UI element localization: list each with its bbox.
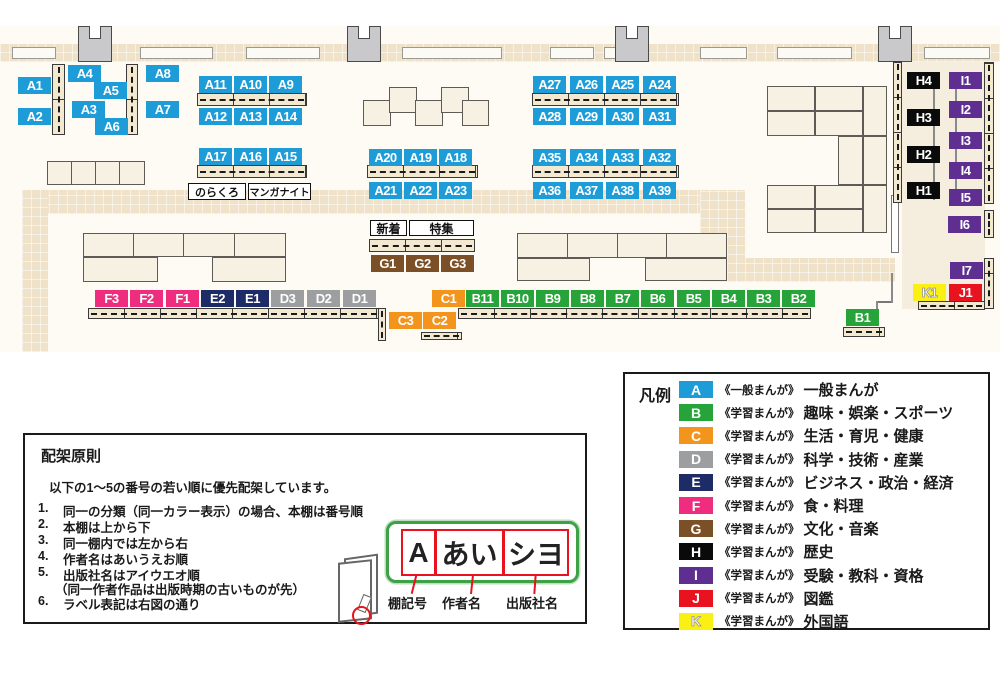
wall-window bbox=[402, 47, 502, 59]
table-block bbox=[517, 233, 568, 258]
legend-series-label: 《学習まんが》 bbox=[719, 613, 800, 629]
shelf-label-a23: A23 bbox=[439, 182, 472, 199]
walkway-left-vertical bbox=[22, 190, 48, 352]
table-block bbox=[838, 136, 863, 185]
legend-chip-h: H bbox=[679, 543, 713, 560]
table-block bbox=[133, 233, 184, 257]
shelf-label-i6: I6 bbox=[948, 216, 981, 233]
table-block bbox=[462, 100, 489, 126]
shelf-label-a14: A14 bbox=[269, 108, 302, 125]
shelf-label-b9: B9 bbox=[536, 290, 569, 307]
table-block bbox=[83, 233, 134, 257]
wall-window bbox=[550, 47, 594, 59]
shelf-label-b7: B7 bbox=[606, 290, 639, 307]
shelf-run bbox=[984, 210, 994, 238]
shelf-label-a37: A37 bbox=[570, 182, 603, 199]
shelf-label-a24: A24 bbox=[643, 76, 676, 93]
legend-series-label: 《学習まんが》 bbox=[719, 521, 800, 537]
shelf-label-a12: A12 bbox=[199, 108, 232, 125]
legend-category-label: ビジネス・政治・経済 bbox=[804, 472, 954, 493]
shelf-label-a16: A16 bbox=[234, 148, 267, 165]
table-block bbox=[863, 185, 887, 233]
legend-row-d: D《学習まんが》科学・技術・産業 bbox=[625, 448, 988, 471]
shelf-label-a2: A2 bbox=[18, 108, 51, 125]
shelf-label-a8: A8 bbox=[146, 65, 179, 82]
legend-row-a: A《一般まんが》一般まんが bbox=[625, 378, 988, 401]
legend-series-label: 《学習まんが》 bbox=[719, 567, 800, 583]
shelf-dash bbox=[381, 311, 383, 338]
table-block bbox=[212, 257, 286, 282]
legend-row-b: B《学習まんが》趣味・娯楽・スポーツ bbox=[625, 401, 988, 424]
principle-item-1-number: 1. bbox=[38, 501, 48, 515]
shelf-label-h1: H1 bbox=[907, 182, 940, 199]
legend-series-label: 《学習まんが》 bbox=[719, 498, 800, 514]
shelf-dash bbox=[988, 213, 990, 235]
legend-row-h: H《学習まんが》歴史 bbox=[625, 540, 988, 563]
table-block bbox=[47, 161, 72, 185]
shelf-label-j1: J1 bbox=[949, 284, 982, 301]
pointer-line-publisher bbox=[533, 575, 536, 594]
shelving-principles-panel: 配架原則 以下の1～5の番号の若い順に優先配架しています。 1.同一の分類（同一… bbox=[23, 433, 587, 624]
principles-title: 配架原則 bbox=[41, 445, 101, 466]
annotation-manga-night: マンガナイト bbox=[248, 183, 311, 200]
book-illustration bbox=[330, 553, 382, 623]
shelf-run bbox=[532, 165, 679, 178]
shelf-label-a25: A25 bbox=[606, 76, 639, 93]
table-block bbox=[183, 233, 235, 257]
legend-series-label: 《学習まんが》 bbox=[719, 428, 800, 444]
legend-row-i: I《学習まんが》受験・教科・資格 bbox=[625, 564, 988, 587]
principle-item-6-number: 6. bbox=[38, 594, 48, 608]
shelf-dash bbox=[58, 67, 60, 132]
shelf-dash bbox=[424, 335, 459, 337]
legend-row-f: F《学習まんが》食・料理 bbox=[625, 494, 988, 517]
wall-segment bbox=[891, 195, 899, 253]
legend-series-label: 《一般まんが》 bbox=[719, 382, 800, 398]
pillar bbox=[78, 26, 112, 62]
shelf-run bbox=[893, 61, 902, 203]
shelf-label-a28: A28 bbox=[533, 108, 566, 125]
table-block bbox=[567, 233, 618, 258]
shelf-dash bbox=[372, 245, 472, 247]
legend-category-label: 趣味・娯楽・スポーツ bbox=[804, 402, 954, 423]
table-block bbox=[389, 87, 417, 113]
label-example-box: A あい シヨ bbox=[386, 521, 579, 583]
shelf-run bbox=[197, 165, 307, 178]
shelf-label-a17: A17 bbox=[199, 148, 232, 165]
wall-window bbox=[140, 47, 213, 59]
shelf-label-c1: C1 bbox=[432, 290, 465, 307]
wall-window bbox=[246, 47, 320, 59]
shelf-label-a6: A6 bbox=[95, 118, 128, 135]
pillar-notch bbox=[358, 26, 370, 39]
shelf-label-a34: A34 bbox=[570, 149, 603, 166]
shelf-dash bbox=[461, 313, 808, 315]
shelf-label-a30: A30 bbox=[606, 108, 639, 125]
walkway-right-band bbox=[700, 258, 895, 282]
shelf-run bbox=[367, 165, 478, 178]
shelf-label-a7: A7 bbox=[146, 101, 179, 118]
label-example-author: あい bbox=[435, 529, 504, 576]
shelf-label-g1: G1 bbox=[371, 255, 404, 272]
table-block bbox=[767, 86, 815, 111]
shelf-label-g2: G2 bbox=[406, 255, 439, 272]
shelf-label-g3: G3 bbox=[441, 255, 474, 272]
shelf-run bbox=[88, 308, 380, 319]
legend-chip-a: A bbox=[679, 381, 713, 398]
shelf-label-b8: B8 bbox=[571, 290, 604, 307]
shelf-label-a5: A5 bbox=[94, 82, 127, 99]
legend-chip-b: B bbox=[679, 404, 713, 421]
shelf-label-a9: A9 bbox=[269, 76, 302, 93]
table-block bbox=[83, 257, 158, 282]
pillar-notch bbox=[89, 26, 101, 39]
shelf-label-a33: A33 bbox=[606, 149, 639, 166]
pointer-line-author bbox=[470, 575, 474, 594]
shelf-label-e2: E2 bbox=[201, 290, 234, 307]
shelf-label-a21: A21 bbox=[369, 182, 402, 199]
legend-category-label: 歴史 bbox=[804, 541, 834, 562]
principles-intro: 以下の1～5の番号の若い順に優先配架しています。 bbox=[49, 477, 336, 496]
shelf-dash bbox=[846, 331, 882, 333]
shelf-label-a11: A11 bbox=[199, 76, 232, 93]
wall-window bbox=[12, 47, 56, 59]
legend-chip-i: I bbox=[679, 567, 713, 584]
label-highlight-circle bbox=[352, 606, 371, 625]
legend-chip-k: K bbox=[679, 613, 713, 630]
shelf-label-b6: B6 bbox=[641, 290, 674, 307]
wall-window bbox=[777, 47, 852, 59]
legend-row-k: K《学習まんが》外国語 bbox=[625, 610, 988, 633]
table-block bbox=[815, 209, 863, 233]
legend-chip-j: J bbox=[679, 590, 713, 607]
legend-category-label: 科学・技術・産業 bbox=[804, 449, 924, 470]
shelf-label-a29: A29 bbox=[570, 108, 603, 125]
shelf-label-a18: A18 bbox=[439, 149, 472, 166]
legend-category-label: 食・料理 bbox=[804, 495, 864, 516]
pillar-notch bbox=[889, 26, 901, 39]
shelf-label-a27: A27 bbox=[533, 76, 566, 93]
shelf-label-i4: I4 bbox=[949, 162, 982, 179]
principle-item-6: ラベル表記は右図の通り bbox=[63, 594, 201, 613]
shelf-label-f2: F2 bbox=[130, 290, 163, 307]
shelf-label-h4: H4 bbox=[907, 72, 940, 89]
table-block bbox=[645, 258, 727, 281]
shelf-run bbox=[52, 64, 65, 135]
shelf-label-a22: A22 bbox=[404, 182, 437, 199]
legend-category-label: 図鑑 bbox=[804, 588, 834, 609]
caption-author: 作者名 bbox=[442, 593, 481, 612]
shelf-dash bbox=[91, 313, 377, 315]
shelf-label-b1: B1 bbox=[846, 309, 879, 326]
annotation-norakuro: のらくろ bbox=[188, 183, 246, 200]
table-block bbox=[95, 161, 120, 185]
shelf-run bbox=[458, 308, 811, 319]
table-block bbox=[767, 111, 815, 136]
shelf-dash bbox=[535, 171, 676, 173]
shelf-dash bbox=[988, 65, 990, 201]
principle-item-2-number: 2. bbox=[38, 517, 48, 531]
shelf-dash bbox=[897, 64, 899, 200]
shelf-dash bbox=[535, 99, 676, 101]
legend-series-label: 《学習まんが》 bbox=[719, 405, 800, 421]
pillar bbox=[615, 26, 649, 62]
shelf-label-a15: A15 bbox=[269, 148, 302, 165]
shelf-label-a31: A31 bbox=[643, 108, 676, 125]
shelf-label-a32: A32 bbox=[643, 149, 676, 166]
shelf-run bbox=[421, 332, 462, 340]
shelf-label-i2: I2 bbox=[949, 101, 982, 118]
shelf-label-a10: A10 bbox=[234, 76, 267, 93]
shelf-label-a20: A20 bbox=[369, 149, 402, 166]
shelf-label-b5: B5 bbox=[677, 290, 710, 307]
legend-chip-e: E bbox=[679, 474, 713, 491]
table-block bbox=[767, 209, 815, 233]
shelf-label-a19: A19 bbox=[404, 149, 437, 166]
shelf-label-a39: A39 bbox=[643, 182, 676, 199]
shelf-run bbox=[378, 308, 386, 341]
legend-chip-f: F bbox=[679, 497, 713, 514]
legend-category-label: 文化・音楽 bbox=[804, 518, 879, 539]
shelf-label-a35: A35 bbox=[533, 149, 566, 166]
table-block bbox=[617, 233, 667, 258]
shelf-run bbox=[918, 301, 985, 310]
shelf-label-i3: I3 bbox=[949, 132, 982, 149]
table-block bbox=[234, 233, 286, 257]
pillar bbox=[878, 26, 912, 62]
table-block bbox=[666, 233, 727, 258]
legend-category-label: 外国語 bbox=[804, 611, 849, 632]
shelf-run bbox=[197, 93, 307, 106]
shelf-label-e1: E1 bbox=[236, 290, 269, 307]
legend-category-label: 生活・育児・健康 bbox=[804, 425, 924, 446]
pillar-notch bbox=[626, 26, 638, 39]
annotation-new-arrivals: 新着 bbox=[370, 220, 407, 236]
shelf-label-c2: C2 bbox=[423, 312, 456, 329]
legend-row-e: E《学習まんが》ビジネス・政治・経済 bbox=[625, 471, 988, 494]
wall-window bbox=[924, 47, 990, 59]
principle-item-3-number: 3. bbox=[38, 533, 48, 547]
table-block bbox=[415, 100, 443, 126]
label-example-shelf-code: A bbox=[401, 529, 436, 576]
wall-window bbox=[700, 47, 747, 59]
legend-row-c: C《学習まんが》生活・育児・健康 bbox=[625, 424, 988, 447]
shelf-label-b11: B11 bbox=[466, 290, 499, 307]
shelf-label-k1: K1 bbox=[913, 284, 946, 301]
caption-shelf-code: 棚記号 bbox=[388, 593, 427, 612]
shelf-label-a38: A38 bbox=[606, 182, 639, 199]
shelf-label-a3: A3 bbox=[72, 101, 105, 118]
table-block bbox=[767, 185, 815, 209]
shelf-label-c3: C3 bbox=[389, 312, 422, 329]
shelf-run bbox=[532, 93, 679, 106]
shelf-label-f1: F1 bbox=[166, 290, 199, 307]
shelf-label-a4: A4 bbox=[68, 65, 101, 82]
caption-publisher: 出版社名 bbox=[506, 593, 558, 612]
table-block bbox=[517, 258, 590, 281]
legend-chip-g: G bbox=[679, 520, 713, 537]
legend-series-label: 《学習まんが》 bbox=[719, 590, 800, 606]
legend-row-j: J《学習まんが》図鑑 bbox=[625, 587, 988, 610]
shelf-dash bbox=[988, 261, 990, 306]
table-block bbox=[863, 136, 887, 185]
shelf-dash bbox=[131, 67, 133, 132]
legend-category-label: 受験・教科・資格 bbox=[804, 565, 924, 586]
legend-row-g: G《学習まんが》文化・音楽 bbox=[625, 517, 988, 540]
shelf-label-a13: A13 bbox=[234, 108, 267, 125]
wall-line bbox=[891, 273, 893, 303]
legend-chip-d: D bbox=[679, 451, 713, 468]
shelf-label-b10: B10 bbox=[501, 290, 534, 307]
shelf-label-h2: H2 bbox=[907, 146, 940, 163]
shelf-run bbox=[984, 62, 994, 204]
shelf-label-f3: F3 bbox=[95, 290, 128, 307]
shelf-dash bbox=[370, 171, 475, 173]
legend-series-label: 《学習まんが》 bbox=[719, 474, 800, 490]
table-block bbox=[815, 86, 863, 111]
shelf-dash bbox=[200, 99, 304, 101]
shelf-label-i5: I5 bbox=[949, 189, 982, 206]
shelf-label-d2: D2 bbox=[307, 290, 340, 307]
shelf-label-a26: A26 bbox=[570, 76, 603, 93]
shelf-label-i7: I7 bbox=[950, 262, 983, 279]
shelf-label-d3: D3 bbox=[271, 290, 304, 307]
table-block bbox=[863, 86, 887, 136]
shelf-label-b3: B3 bbox=[747, 290, 780, 307]
table-block bbox=[71, 161, 96, 185]
shelf-dash bbox=[921, 305, 982, 307]
pillar bbox=[347, 26, 381, 62]
shelf-run bbox=[369, 239, 475, 252]
legend-rows: A《一般まんが》一般まんがB《学習まんが》趣味・娯楽・スポーツC《学習まんが》生… bbox=[625, 378, 988, 633]
label-example-publisher: シヨ bbox=[503, 529, 569, 576]
floor-map: 配架原則 以下の1～5の番号の若い順に優先配架しています。 1.同一の分類（同一… bbox=[0, 0, 1000, 700]
shelf-label-a36: A36 bbox=[533, 182, 566, 199]
table-block bbox=[119, 161, 145, 185]
shelf-run bbox=[984, 258, 994, 309]
shelf-label-b4: B4 bbox=[712, 290, 745, 307]
table-block bbox=[363, 100, 391, 126]
annotation-feature: 特集 bbox=[409, 220, 474, 236]
principle-item-5-number: 5. bbox=[38, 565, 48, 579]
table-block bbox=[815, 111, 863, 136]
shelf-label-i1: I1 bbox=[949, 72, 982, 89]
shelf-run bbox=[843, 327, 885, 337]
legend-chip-c: C bbox=[679, 427, 713, 444]
principle-item-4-number: 4. bbox=[38, 549, 48, 563]
legend-category-label: 一般まんが bbox=[804, 379, 879, 400]
shelf-label-d1: D1 bbox=[343, 290, 376, 307]
shelf-label-a1: A1 bbox=[18, 77, 51, 94]
table-block bbox=[815, 185, 863, 209]
legend-panel: 凡例 A《一般まんが》一般まんがB《学習まんが》趣味・娯楽・スポーツC《学習まん… bbox=[623, 372, 990, 630]
legend-series-label: 《学習まんが》 bbox=[719, 544, 800, 560]
legend-series-label: 《学習まんが》 bbox=[719, 451, 800, 467]
shelf-label-h3: H3 bbox=[907, 109, 940, 126]
shelf-label-b2: B2 bbox=[782, 290, 815, 307]
shelf-dash bbox=[200, 171, 304, 173]
